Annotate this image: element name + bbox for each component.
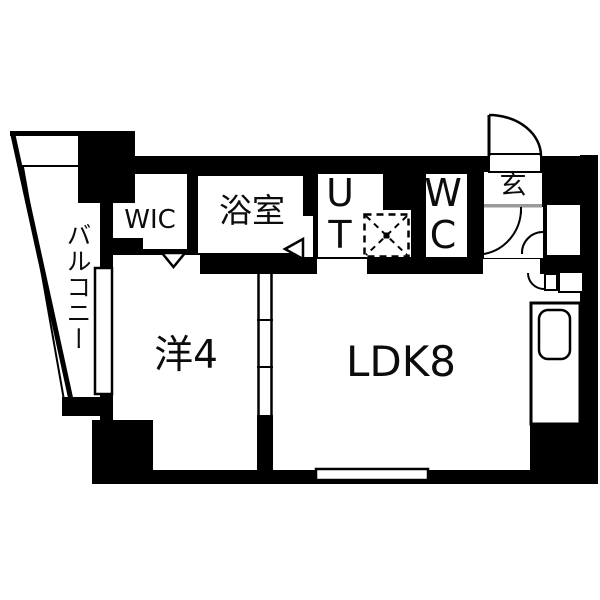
- ldk-label: LDK8: [278, 340, 524, 384]
- balcony-label: バルコニー: [60, 202, 94, 372]
- ldk-window: [316, 469, 428, 480]
- western-room-label: 洋4: [114, 336, 258, 377]
- entrance-step-line: [484, 204, 542, 208]
- wic-label: WIC: [111, 207, 189, 234]
- kitchen-counter: [531, 303, 580, 424]
- utility-label: U T: [318, 172, 362, 256]
- wc-label: W C: [421, 172, 465, 256]
- entrance-opening: [483, 259, 540, 274]
- entrance-label: 玄: [483, 172, 543, 200]
- western-room-top-strip: [113, 255, 200, 274]
- sliding-door-track: [257, 273, 273, 416]
- floor-plan: バルコニー WIC 浴室 U T W C 玄 洋4 LDK8: [0, 0, 600, 600]
- balcony-window: [95, 268, 112, 394]
- entrance-closet: [547, 205, 580, 255]
- wic-door-opening: [143, 238, 187, 249]
- utility-opening: [317, 259, 367, 274]
- interior-door-swing: [528, 272, 583, 292]
- entrance-door-swing: [489, 115, 541, 172]
- kitchen-sink: [539, 310, 570, 359]
- bathroom-label: 浴室: [200, 194, 304, 229]
